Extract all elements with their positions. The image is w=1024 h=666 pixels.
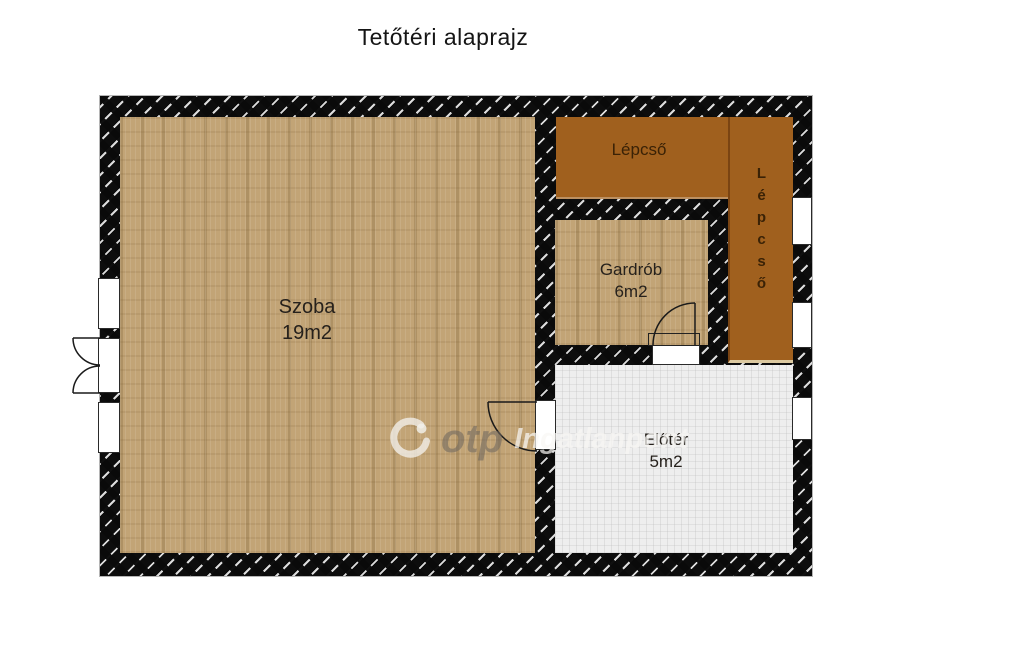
window-right-bottom (792, 397, 812, 440)
window-right-middle (792, 302, 812, 348)
window-right-top (792, 197, 812, 245)
door-opening-left (98, 338, 120, 393)
room-name-stairs-top: Lépcső (612, 140, 667, 159)
room-label-eloter: Előtér 5m2 (591, 429, 741, 473)
window-left-bottom (98, 402, 120, 453)
room-label-stairs-side: Lépcső (753, 165, 770, 297)
room-name-eloter: Előtér (591, 429, 741, 451)
window-left-top (98, 278, 120, 329)
page-title: Tetőtéri alaprajz (283, 24, 603, 51)
room-area-gardrob: 6m2 (556, 281, 706, 303)
room-name-gardrob: Gardrób (556, 259, 706, 281)
door-swing-gardrob (652, 302, 696, 346)
room-label-gardrob: Gardrób 6m2 (556, 259, 706, 303)
room-name-szoba: Szoba (232, 294, 382, 320)
door-opening-gardrob (652, 345, 700, 365)
floor-plan: Lépcső Szoba 19m2 Lépcső Gardrób 6m2 Elő… (100, 96, 812, 576)
door-swing-entrance-double (72, 337, 100, 394)
door-opening-szoba-eloter (535, 400, 556, 450)
door-swing-szoba (487, 401, 537, 451)
room-label-szoba: Szoba 19m2 (232, 294, 382, 346)
room-area-szoba: 19m2 (232, 320, 382, 346)
room-stairs-side: Lépcső (728, 117, 793, 363)
room-area-eloter: 5m2 (591, 451, 741, 473)
room-label-stairs-top: Lépcső (564, 140, 714, 160)
